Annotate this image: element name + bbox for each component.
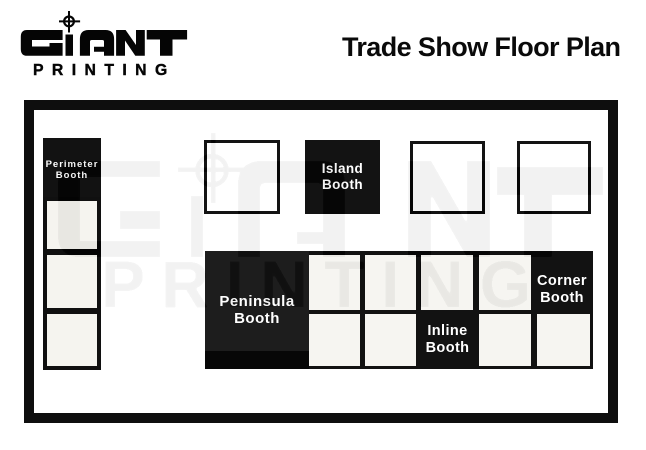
svg-text:PRINTING: PRINTING xyxy=(33,62,176,79)
